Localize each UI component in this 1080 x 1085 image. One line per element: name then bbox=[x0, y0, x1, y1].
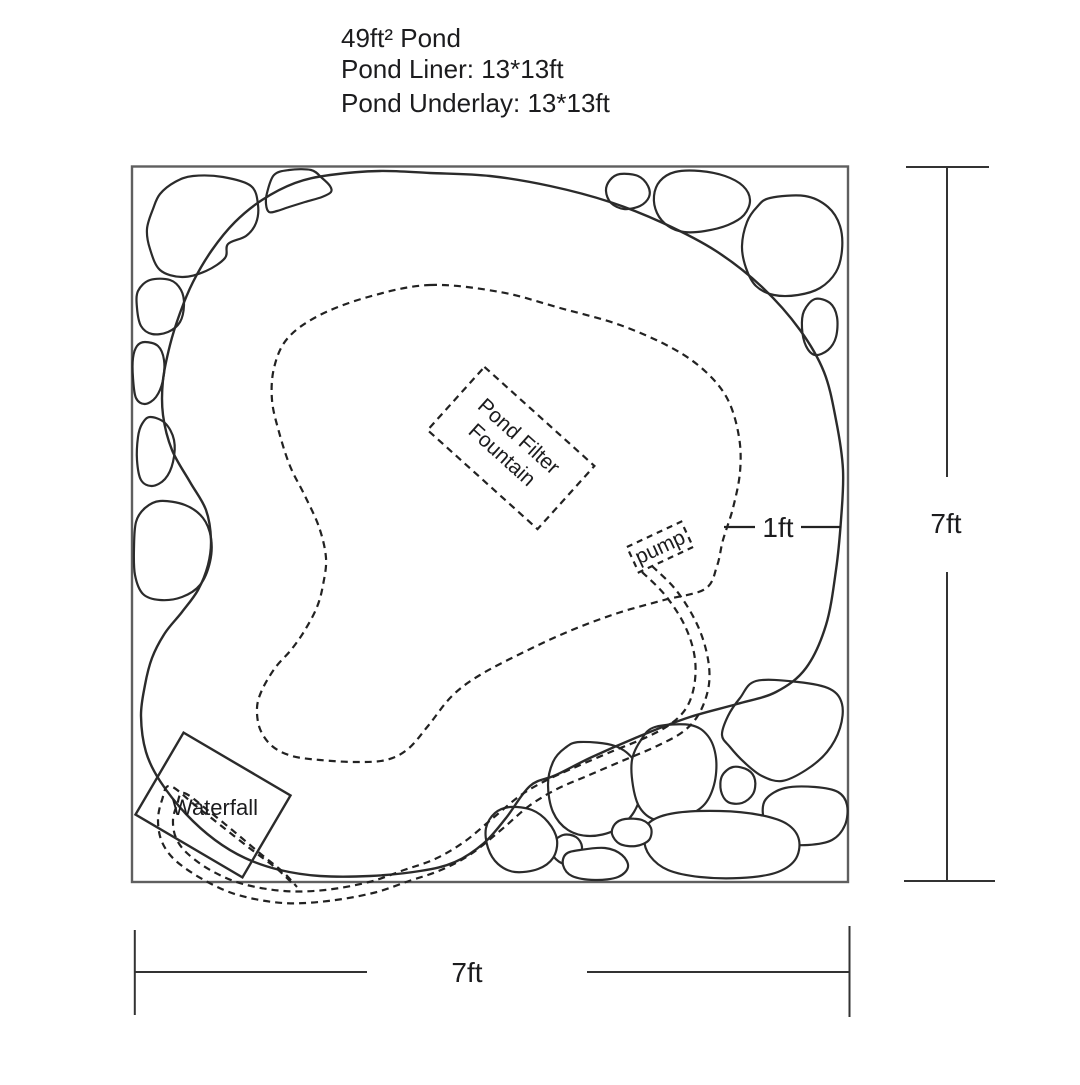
svg-text:Pond Liner: 13*13ft: Pond Liner: 13*13ft bbox=[341, 54, 564, 84]
svg-text:7ft: 7ft bbox=[451, 957, 482, 988]
svg-text:1ft: 1ft bbox=[762, 512, 793, 543]
svg-text:7ft: 7ft bbox=[930, 508, 961, 539]
svg-text:49ft² Pond: 49ft² Pond bbox=[341, 23, 461, 53]
svg-text:Waterfall: Waterfall bbox=[172, 795, 258, 820]
svg-text:Pond Underlay: 13*13ft: Pond Underlay: 13*13ft bbox=[341, 88, 611, 118]
